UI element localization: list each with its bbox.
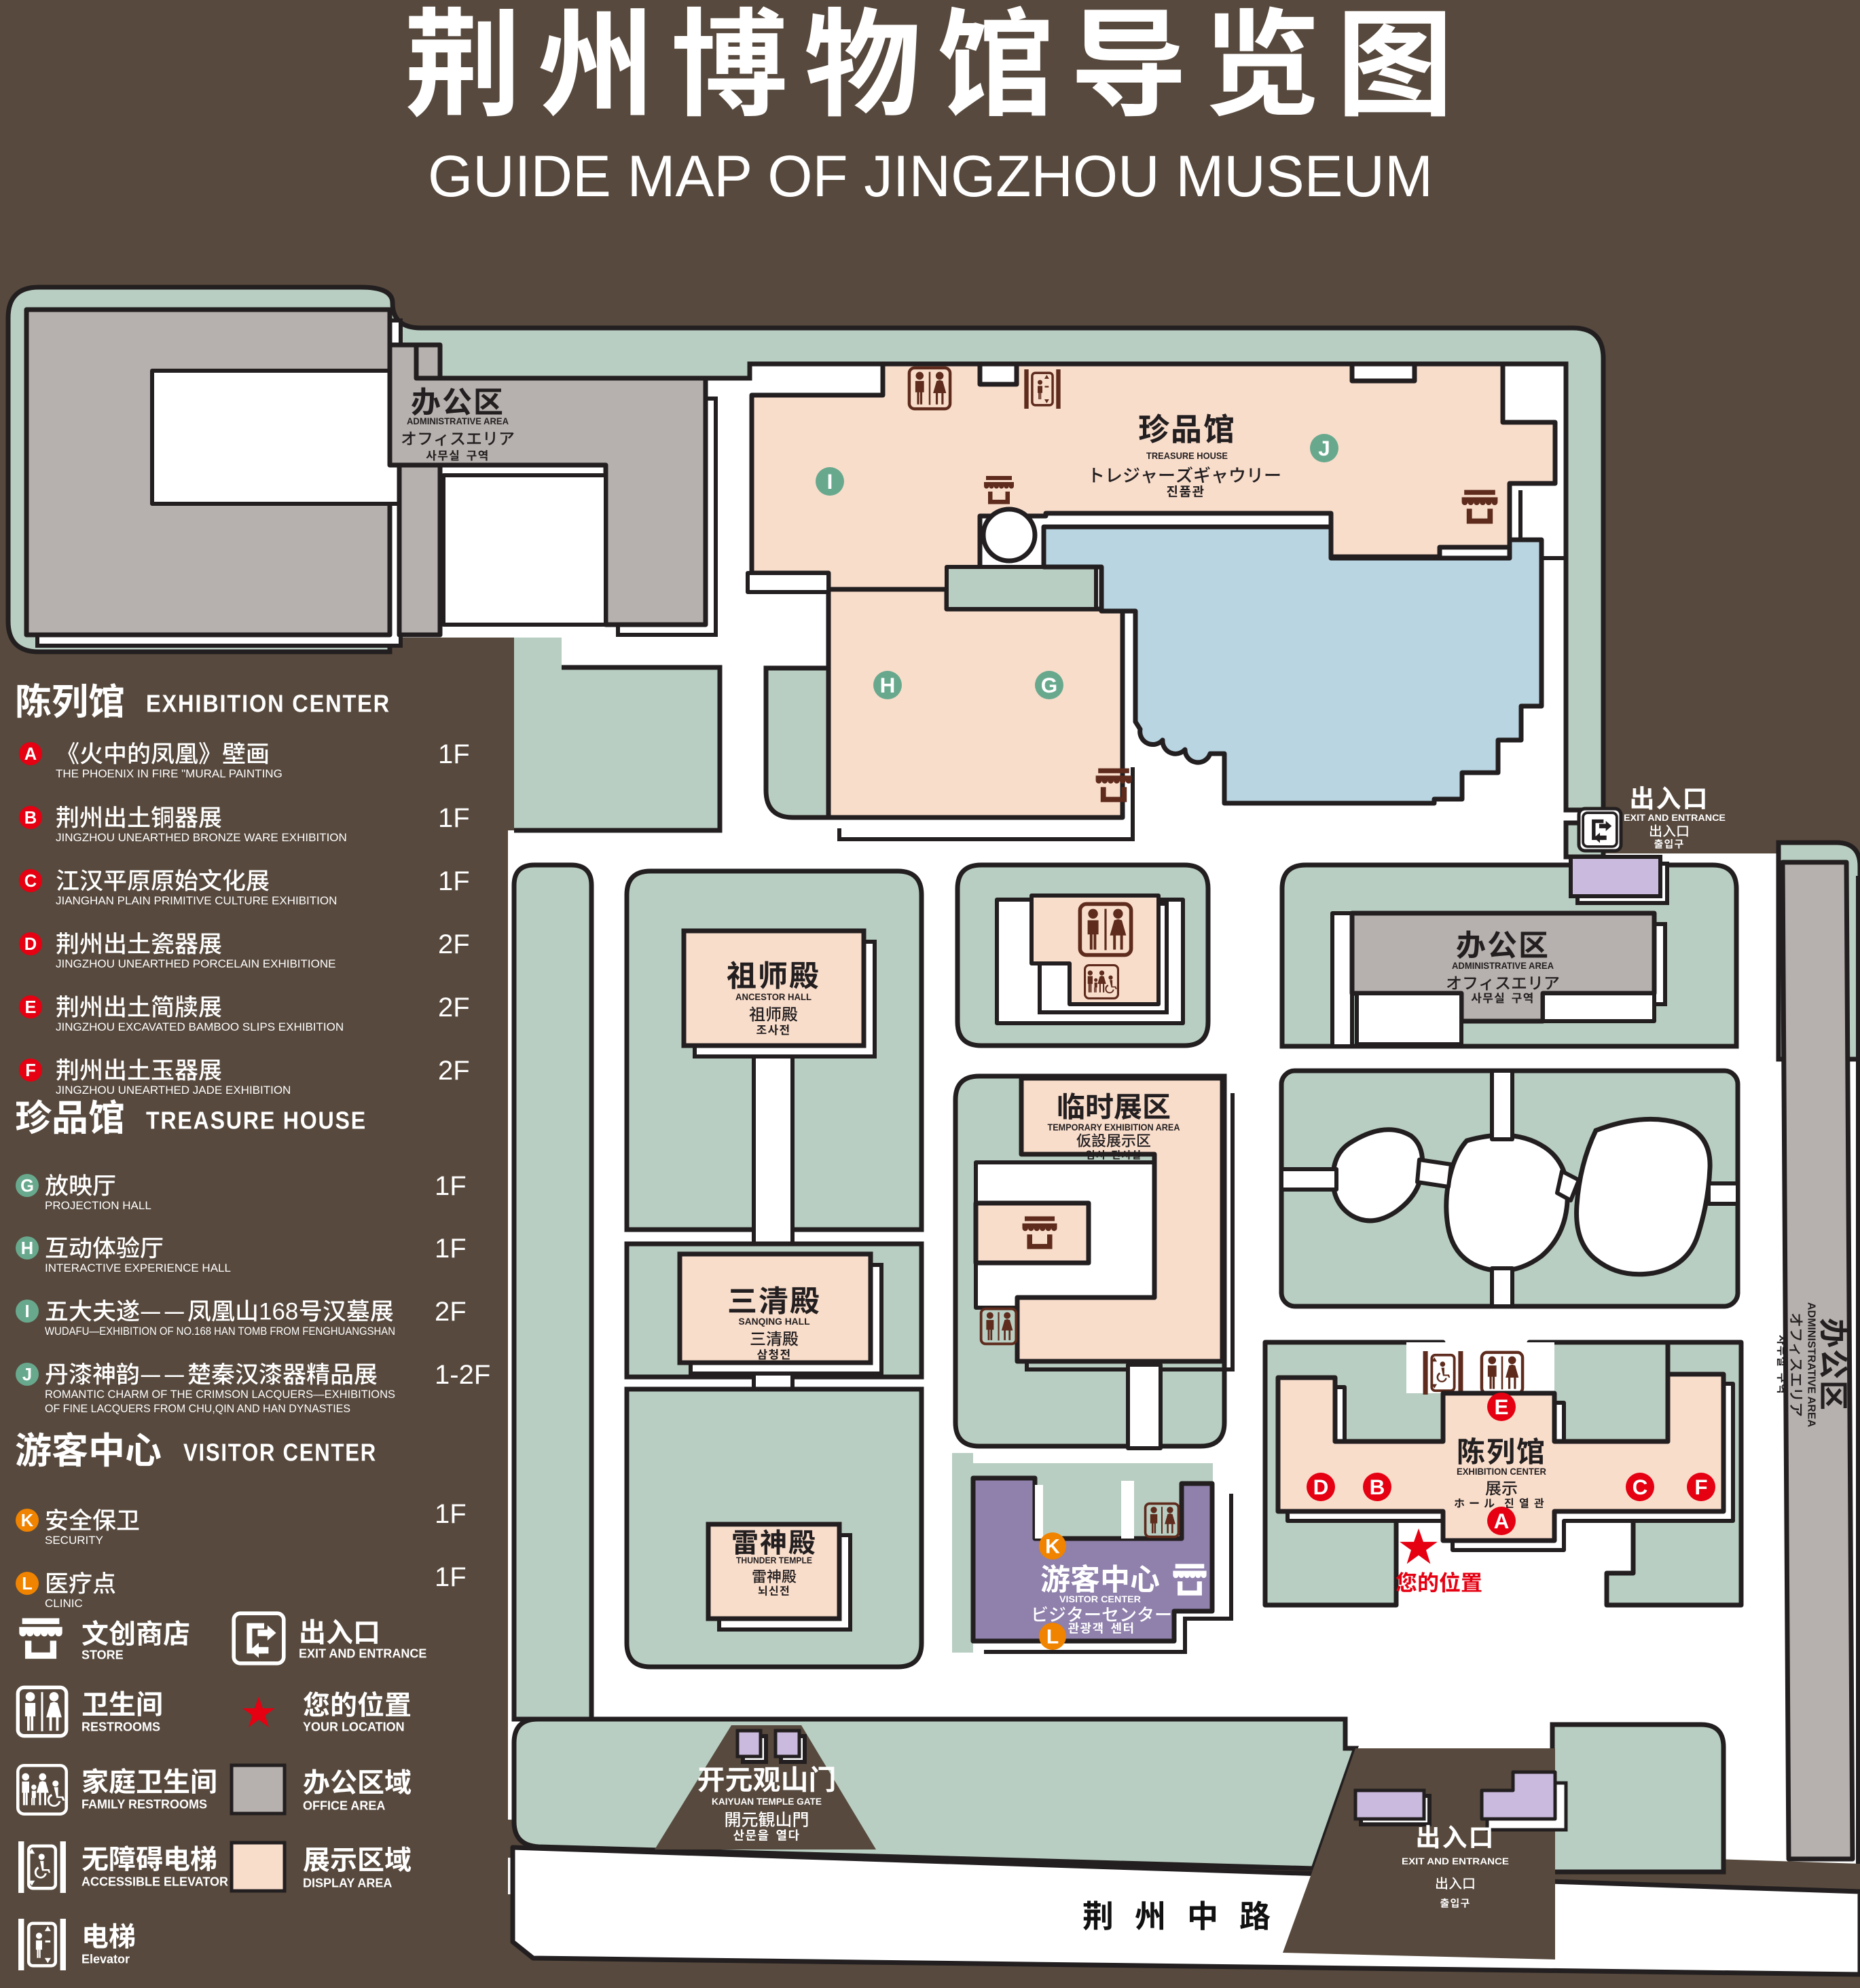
svg-text:PROJECTION HALL: PROJECTION HALL	[45, 1199, 151, 1212]
svg-text:ADMINISTRATIVE AREA: ADMINISTRATIVE AREA	[407, 416, 509, 426]
svg-text:G: G	[20, 1177, 34, 1196]
svg-text:GUIDE MAP OF JINGZHOU MUSEUM: GUIDE MAP OF JINGZHOU MUSEUM	[428, 144, 1433, 209]
svg-text:Elevator: Elevator	[81, 1952, 130, 1966]
svg-text:C: C	[24, 872, 37, 891]
svg-text:F: F	[25, 1061, 36, 1080]
svg-text:2F: 2F	[438, 993, 470, 1023]
svg-text:2F: 2F	[438, 929, 470, 959]
svg-text:TREASURE HOUSE: TREASURE HOUSE	[146, 1107, 367, 1135]
svg-text:THE PHOENIX IN FIRE "MURAL PAI: THE PHOENIX IN FIRE "MURAL PAINTING	[56, 767, 282, 780]
svg-text:EXIT AND ENTRANCE: EXIT AND ENTRANCE	[1624, 812, 1726, 823]
svg-text:ACCESSIBLE ELEVATOR: ACCESSIBLE ELEVATOR	[81, 1875, 228, 1888]
svg-text:FAMILY RESTROOMS: FAMILY RESTROOMS	[81, 1797, 207, 1811]
svg-text:YOUR LOCATION: YOUR LOCATION	[303, 1720, 405, 1733]
svg-text:ROMANTIC CHARM OF THE CRIMSON: ROMANTIC CHARM OF THE CRIMSON LACQUERS—E…	[45, 1388, 395, 1401]
svg-text:H: H	[880, 673, 896, 697]
svg-text:THUNDER TEMPLE: THUNDER TEMPLE	[736, 1556, 812, 1566]
svg-text:B: B	[24, 809, 37, 828]
svg-text:E: E	[24, 998, 36, 1017]
svg-text:EXIT AND ENTRANCE: EXIT AND ENTRANCE	[1402, 1856, 1509, 1866]
svg-text:SECURITY: SECURITY	[45, 1534, 103, 1547]
svg-text:JINGZHOU UNEARTHED JADE EXHIBI: JINGZHOU UNEARTHED JADE EXHIBITION	[56, 1084, 291, 1097]
svg-text:DISPLAY AREA: DISPLAY AREA	[303, 1876, 392, 1890]
svg-text:JINGZHOU UNEARTHED BRONZE WARE: JINGZHOU UNEARTHED BRONZE WARE EXHIBITIO…	[56, 831, 347, 844]
svg-text:VISITOR CENTER: VISITOR CENTER	[183, 1439, 377, 1467]
svg-text:2F: 2F	[438, 1056, 470, 1086]
svg-text:D: D	[1313, 1475, 1329, 1499]
svg-text:H: H	[21, 1239, 33, 1258]
svg-text:L: L	[22, 1575, 33, 1594]
svg-text:1F: 1F	[435, 1562, 467, 1592]
svg-text:OFFICE AREA: OFFICE AREA	[303, 1799, 385, 1812]
svg-text:EXIT AND ENTRANCE: EXIT AND ENTRANCE	[299, 1646, 426, 1660]
svg-text:1F: 1F	[438, 739, 470, 769]
svg-text:ADMINISTRATIVE AREA: ADMINISTRATIVE AREA	[1805, 1302, 1817, 1427]
svg-text:I: I	[24, 1302, 29, 1321]
svg-text:EXHIBITION CENTER: EXHIBITION CENTER	[1457, 1466, 1546, 1477]
svg-text:1F: 1F	[438, 866, 470, 896]
svg-text:WUDAFU—EXHIBITION OF NO.168 HA: WUDAFU—EXHIBITION OF NO.168 HAN TOMB FRO…	[45, 1325, 395, 1338]
svg-text:TREASURE HOUSE: TREASURE HOUSE	[1146, 450, 1228, 461]
svg-text:1F: 1F	[438, 803, 470, 833]
svg-text:EXHIBITION CENTER: EXHIBITION CENTER	[146, 690, 390, 718]
svg-text:1-2F: 1-2F	[435, 1360, 490, 1390]
svg-text:1F: 1F	[435, 1234, 467, 1264]
svg-text:D: D	[24, 935, 37, 954]
svg-text:VISITOR CENTER: VISITOR CENTER	[1059, 1594, 1141, 1604]
svg-text:ADMINISTRATIVE AREA: ADMINISTRATIVE AREA	[1452, 960, 1554, 971]
svg-text:J: J	[1318, 436, 1330, 460]
svg-text:SANQING HALL: SANQING HALL	[739, 1316, 810, 1327]
svg-text:168: 168	[259, 1299, 298, 1325]
svg-text:K: K	[21, 1511, 34, 1530]
svg-text:JINGZHOU UNEARTHED PORCELAIN E: JINGZHOU UNEARTHED PORCELAIN EXHIBITIONE	[56, 957, 335, 970]
svg-text:ANCESTOR HALL: ANCESTOR HALL	[735, 991, 812, 1002]
svg-text:OF FINE LACQUERS FROM CHU,QIN: OF FINE LACQUERS FROM CHU,QIN AND HAN DY…	[45, 1402, 350, 1415]
svg-text:KAIYUAN TEMPLE GATE: KAIYUAN TEMPLE GATE	[712, 1796, 822, 1807]
svg-text:STORE: STORE	[81, 1648, 124, 1661]
svg-text:L: L	[1046, 1626, 1059, 1649]
svg-text:E: E	[1494, 1395, 1508, 1419]
svg-text:1F: 1F	[435, 1171, 467, 1201]
svg-text:1F: 1F	[435, 1499, 467, 1529]
svg-text:TEMPORARY EXHIBITION AREA: TEMPORARY EXHIBITION AREA	[1048, 1122, 1180, 1133]
svg-text:I: I	[827, 469, 833, 494]
svg-text:2F: 2F	[435, 1297, 467, 1327]
svg-text:JIANGHAN PLAIN PRIMITIVE CULTU: JIANGHAN PLAIN PRIMITIVE CULTURE EXHIBIT…	[56, 894, 337, 907]
svg-text:F: F	[1694, 1475, 1707, 1499]
svg-text:B: B	[1370, 1475, 1385, 1499]
svg-text:C: C	[1633, 1475, 1648, 1499]
svg-text:A: A	[1494, 1509, 1510, 1533]
svg-text:JINGZHOU EXCAVATED BAMBOO SLIP: JINGZHOU EXCAVATED BAMBOO SLIPS EXHIBITI…	[56, 1020, 344, 1033]
svg-text:A: A	[24, 745, 37, 764]
svg-text:J: J	[22, 1365, 32, 1384]
svg-text:INTERACTIVE EXPERIENCE HALL: INTERACTIVE EXPERIENCE HALL	[45, 1262, 231, 1274]
svg-text:RESTROOMS: RESTROOMS	[81, 1720, 160, 1733]
svg-text:G: G	[1041, 673, 1058, 697]
svg-text:CLINIC: CLINIC	[45, 1597, 83, 1610]
svg-text:K: K	[1045, 1536, 1060, 1558]
